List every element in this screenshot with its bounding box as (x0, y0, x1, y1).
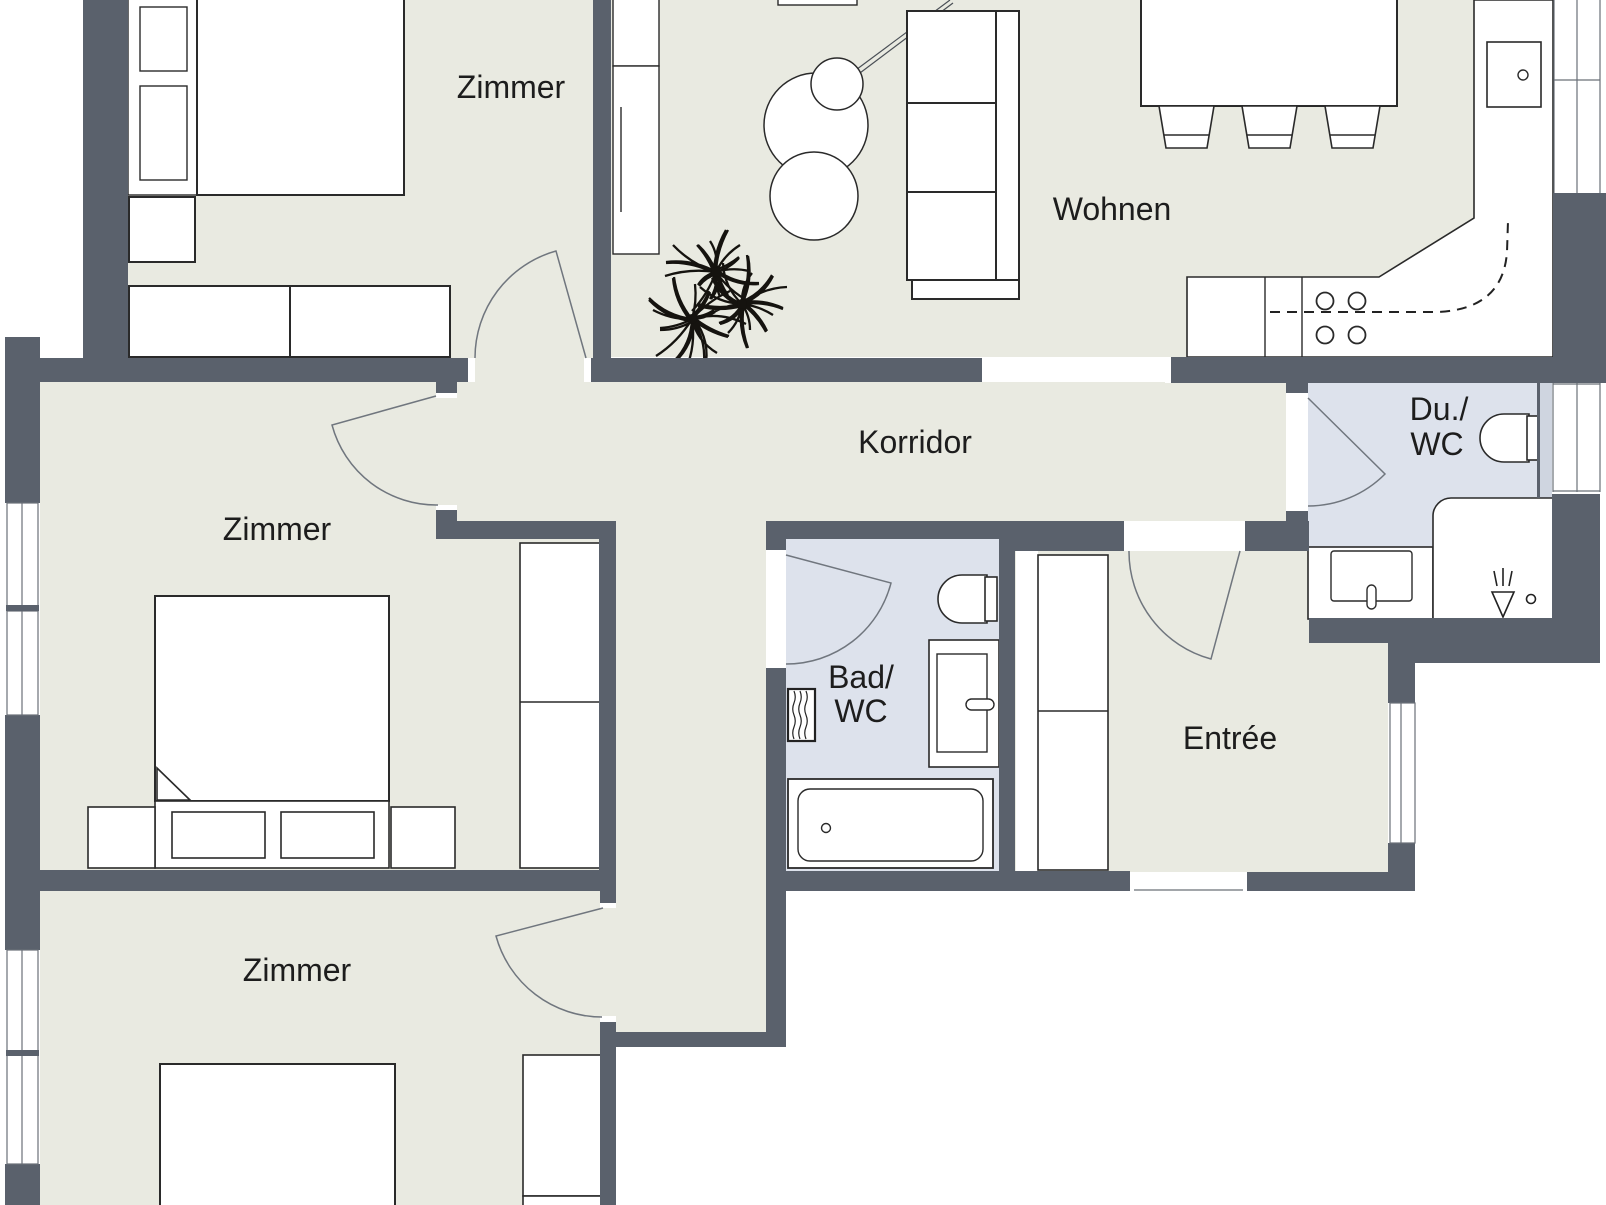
svg-text:Zimmer: Zimmer (223, 511, 332, 547)
svg-text:Bad/: Bad/ (828, 659, 894, 695)
svg-text:Entrée: Entrée (1183, 720, 1277, 756)
svg-text:Zimmer: Zimmer (243, 952, 352, 988)
svg-text:Zimmer: Zimmer (457, 69, 566, 105)
svg-text:Korridor: Korridor (858, 424, 972, 460)
svg-text:WC: WC (834, 693, 887, 729)
svg-text:WC: WC (1410, 426, 1463, 462)
svg-text:Du./: Du./ (1410, 391, 1469, 427)
svg-text:Wohnen: Wohnen (1053, 191, 1172, 227)
